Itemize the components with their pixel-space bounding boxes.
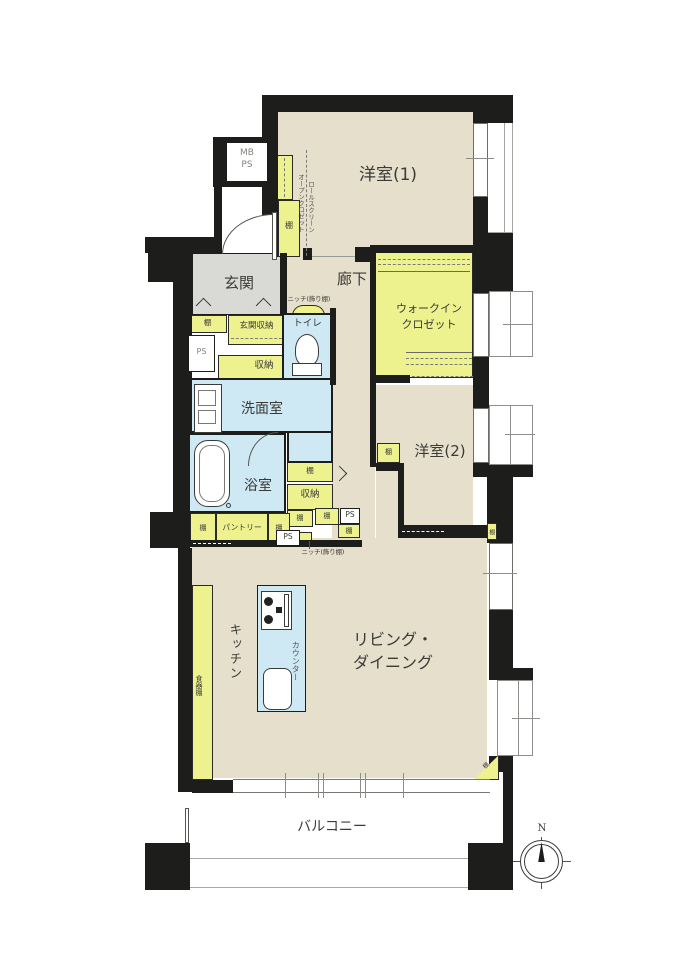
bathtub-drain [226,503,231,508]
window-ld-right [489,543,513,610]
wall-right-seg1 [473,197,488,235]
balcony-left-post [185,808,189,843]
label-niche-upper: ニッチ(飾り棚) [284,296,334,303]
label-corridor: 廊下 [322,271,382,288]
wic-hatch-line3 [406,358,472,359]
open-closet-upper-hatch [284,158,285,197]
window-ld-right-tick [483,573,517,574]
window-western2-tick [505,434,535,435]
ps-label-mid: PS [340,511,360,520]
window-western2-bay [489,405,533,465]
label-balcony: バルコニー [272,819,392,835]
wic-hatch-line1 [378,259,470,260]
washroom-nook [287,431,333,463]
wall-left-chunk2 [150,512,190,548]
window-ld-bay-tick [512,718,540,719]
label-western2: 洋室(2) [390,443,490,460]
label-pantry-shelf-right: 棚 [268,524,290,532]
label-entrance: 玄関 [209,275,269,292]
wall-left-seg3 [173,378,190,513]
label-toilet: トイレ [285,319,330,330]
open-closet-dash-line [306,150,307,256]
label-western1: 洋室(1) [328,166,448,186]
label-right-wall-shelf: 棚 [487,526,494,538]
label-niche-lower: ニッチ(飾り棚) [298,549,348,556]
window-western1-right [473,123,488,197]
entry-door-arc [222,214,274,254]
wic-shelf-line-top [378,271,470,272]
sliding-tick-3 [323,773,324,798]
ps-label-pantry: PS [276,533,300,542]
wall-entry-divider [280,253,287,315]
sliding-tick-5 [365,773,366,798]
label-roll-screen: ロールスクリーン [306,172,313,242]
wall-right-seg5 [489,610,513,670]
wall-bottom-left [192,780,234,793]
wall-left-chunk1 [148,253,192,282]
window-balcony-sliding [233,779,490,793]
sliding-tick-4 [360,773,361,798]
stove-burner-1 [264,597,273,606]
label-shelf-row-c: 棚 [338,527,360,535]
label-open-closet: オープンクロゼット [296,163,303,243]
floor-plan: MB PS PS PS PS N 洋室(1) 玄関 廊下 ウォークイン [0,0,690,976]
window-western2-mullion [510,405,511,465]
vanity-cabinet [198,410,216,424]
wall-wic-top [370,245,473,253]
wall-toilet-right [330,308,336,385]
label-pantry-shelf-left: 棚 [190,524,216,532]
label-kitchen: キッチン [227,612,241,692]
wall-right-chunk [473,233,513,295]
wall-left-horiz [145,237,222,253]
wall-top-right-corner [473,95,513,123]
niche-lower-leader [309,541,310,549]
stove-burner-2 [264,615,273,624]
label-open-closet-shelf: 棚 [283,221,295,230]
stove-grill-bar [284,594,289,627]
wall-western2-left [398,470,404,528]
label-mid-shelf: 棚 [287,467,333,476]
balcony-rail-line2 [190,887,468,888]
label-washroom: 洗面室 [222,401,302,417]
pantry-bottom-dash [193,543,231,544]
corner-block-bottom-right [468,843,513,890]
corner-block-bottom-left [145,843,190,890]
wall-left-seg1 [214,185,222,240]
window-western1-tick [466,158,494,159]
sliding-tick-2 [318,773,319,798]
bathtub-inner [199,445,225,502]
label-mid-storage: 収納 [287,490,333,501]
ps-label-top: PS [226,160,268,170]
label-storage-upper: 収納 [218,361,310,372]
wall-western1-bottom-stub [303,248,312,260]
window-wic-gap [473,293,489,357]
ps-label-left: PS [188,347,215,356]
window-wic-tick [503,324,533,325]
western1-door-opening [312,256,355,257]
mb-label: MB [226,148,268,158]
label-shelf-row-a: 棚 [287,514,313,522]
label-living-dining-1: リビング・ [333,631,453,649]
label-counter: カウンター [291,626,300,696]
wall-balcony-right [503,772,513,843]
label-bathroom: 浴室 [230,478,286,494]
stove-knob [276,607,282,613]
label-western2-shelf: 棚 [377,448,400,456]
open-closet-double-line [272,212,277,260]
wic-opening-line [407,376,473,377]
sliding-tick-1 [285,773,286,798]
label-entry-shelf: 棚 [188,319,227,328]
label-living-dining-2: ダイニング [333,654,453,672]
vanity-sink-bowl [198,390,216,406]
kitchen-sink [263,668,292,710]
label-shelf-row-b: 棚 [315,512,339,520]
wall-right-seg2 [473,355,489,410]
label-cupboard: 食器棚 [195,658,203,713]
label-pantry: パントリー [216,524,268,533]
label-entrance-storage: 玄関収納 [228,322,285,332]
wall-wic-bottom [370,375,410,383]
balcony-rail-line1 [190,858,468,859]
sliding-tick-6 [403,773,404,798]
wall-right-foot [489,668,533,680]
wall-top-western1 [262,95,490,112]
wic-hatch-line4 [406,364,472,365]
wall-western2-bottom-dash [402,531,444,532]
compass-north-label: N [532,823,552,835]
label-wic-line1: ウォークイン [389,303,469,316]
wic-hatch-line2 [378,264,470,265]
label-wic-line2: クロゼット [389,319,469,332]
wic-shelf-line-bottom [406,352,472,353]
entrance-storage-hatch [231,338,282,339]
wall-left-column [178,548,192,792]
